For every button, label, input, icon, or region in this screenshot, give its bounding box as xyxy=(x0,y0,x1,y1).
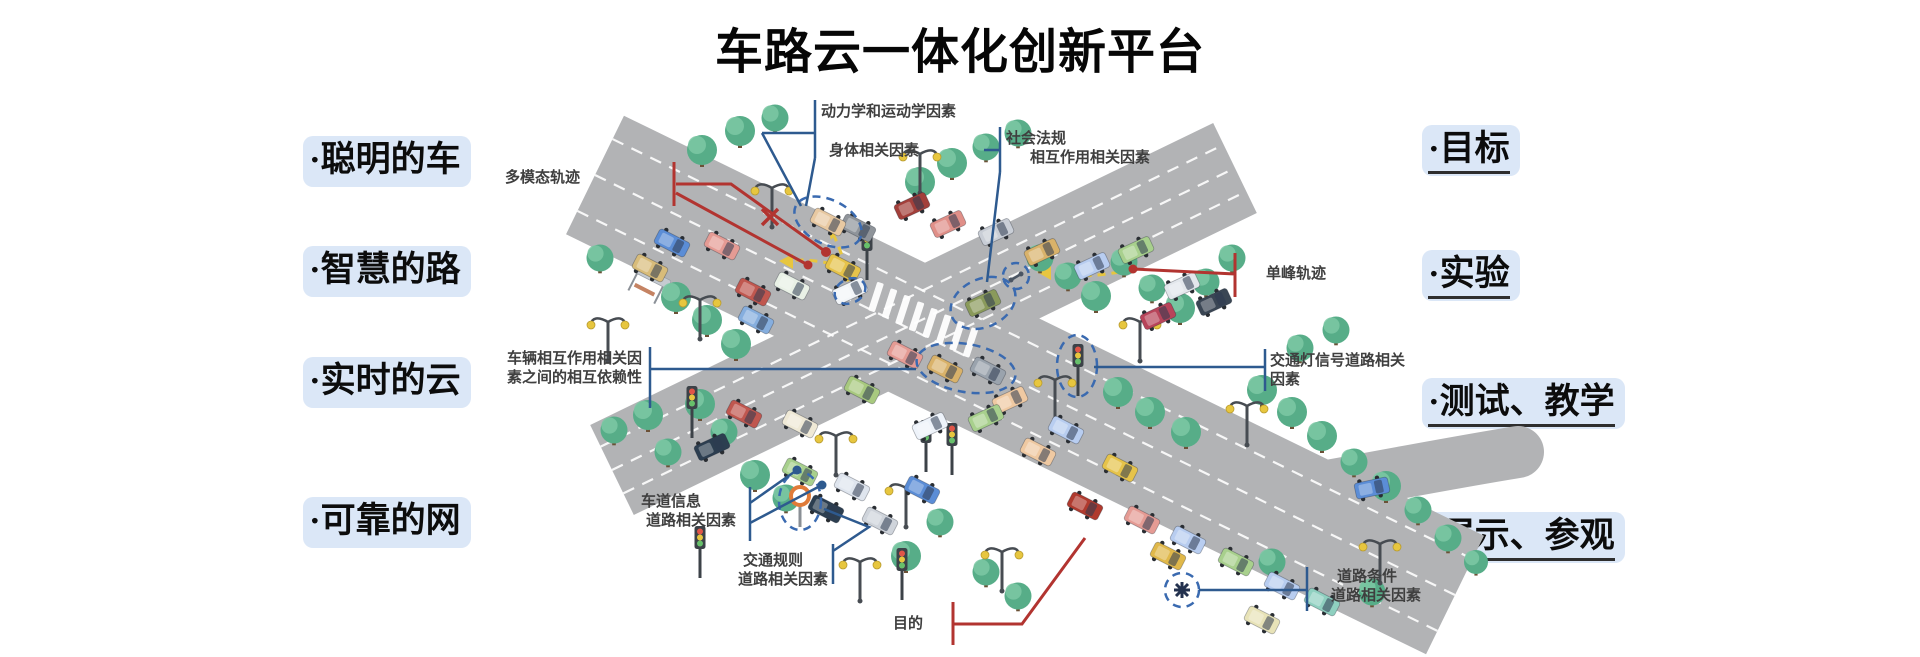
callout-label-traffic-light-signal: 交通灯信号道路相关 因素 xyxy=(1270,351,1405,389)
vehicle-icon xyxy=(860,503,900,538)
callout-text: 因素 xyxy=(1270,370,1405,389)
callout-dot xyxy=(818,481,827,490)
traffic-light-icon xyxy=(947,423,958,475)
callout-label-traffic-rules: 交通规则 道路相关因素 xyxy=(738,551,828,589)
callout-text: 道路相关因素 xyxy=(738,570,828,589)
callout-text: 交通灯信号道路相关 xyxy=(1270,351,1405,370)
callout-text: 道路相关因素 xyxy=(641,511,736,530)
tree-icon xyxy=(1081,281,1111,313)
tree-icon xyxy=(1307,421,1337,453)
callout-dot xyxy=(793,466,802,475)
tree-icon xyxy=(587,245,614,274)
callout-dot xyxy=(821,247,831,257)
callout-label-road-condition: 道路条件 道路相关因素 xyxy=(1331,567,1421,605)
vehicle-icon xyxy=(928,207,968,242)
callout-text: 动力学和运动学因素 xyxy=(821,102,956,121)
callout-text: 道路条件 xyxy=(1331,567,1421,586)
callout-label-lane-info: 车道信息 道路相关因素 xyxy=(641,492,736,530)
callout-text: 道路相关因素 xyxy=(1331,586,1421,605)
road-condition-star-icon xyxy=(1174,582,1190,598)
callout-text: 素之间的相互依赖性 xyxy=(507,368,642,387)
tree-icon xyxy=(692,305,722,337)
tree-icon xyxy=(740,460,770,492)
callout-text: 车道信息 xyxy=(641,492,736,511)
street-lamp-icon xyxy=(815,432,857,477)
callout-label-unimodal-trajectory: 单峰轨迹 xyxy=(1266,264,1326,283)
traffic-light-icon xyxy=(695,526,706,578)
tree-icon xyxy=(1219,245,1246,274)
slide: 车路云一体化创新平台 ·聪明的车 ·智慧的路 ·实时的云 ·可靠的网 ·目标 ·… xyxy=(0,0,1920,657)
street-lamp-icon xyxy=(839,558,881,603)
callout-text: 社会法规 xyxy=(1006,129,1150,148)
callout-text: 相互作用相关因素 xyxy=(1006,148,1150,167)
callout-label-social-rules: 社会法规 相互作用相关因素 xyxy=(1006,129,1150,167)
tree-icon xyxy=(1464,550,1488,576)
tree-icon xyxy=(1277,397,1307,429)
callout-text: 车辆相互作用相关因 xyxy=(507,349,642,368)
tree-icon xyxy=(1139,275,1166,304)
callout-label-body-factors: 身体相关因素 xyxy=(829,141,919,160)
tree-icon xyxy=(973,559,1000,588)
tree-icon xyxy=(1005,583,1032,612)
tree-icon xyxy=(762,105,789,134)
callout-dot xyxy=(1129,265,1138,274)
vehicle-icon xyxy=(1242,602,1282,637)
tree-icon xyxy=(927,509,954,538)
tree-icon xyxy=(1323,317,1350,346)
callout-label-multimodal-trajectory: 多模态轨迹 xyxy=(505,168,580,187)
callout-label-dynamics: 动力学和运动学因素 xyxy=(821,102,956,121)
vehicle-icon xyxy=(902,472,942,507)
intersection-illustration xyxy=(0,0,1920,657)
callout-text: 多模态轨迹 xyxy=(505,168,580,187)
tree-icon xyxy=(725,116,755,148)
callout-label-purpose: 目的 xyxy=(893,614,923,633)
callout-text: 身体相关因素 xyxy=(829,141,919,160)
callout-text: 交通规则 xyxy=(738,551,828,570)
tree-icon xyxy=(973,134,1000,163)
callout-dot xyxy=(804,261,813,270)
callout-text: 单峰轨迹 xyxy=(1266,264,1326,283)
tree-icon xyxy=(937,148,967,180)
callout-text: 目的 xyxy=(893,614,923,633)
traffic-light-icon xyxy=(897,548,908,600)
callout-label-vehicle-interaction: 车辆相互作用相关因 素之间的相互依赖性 xyxy=(507,349,642,387)
